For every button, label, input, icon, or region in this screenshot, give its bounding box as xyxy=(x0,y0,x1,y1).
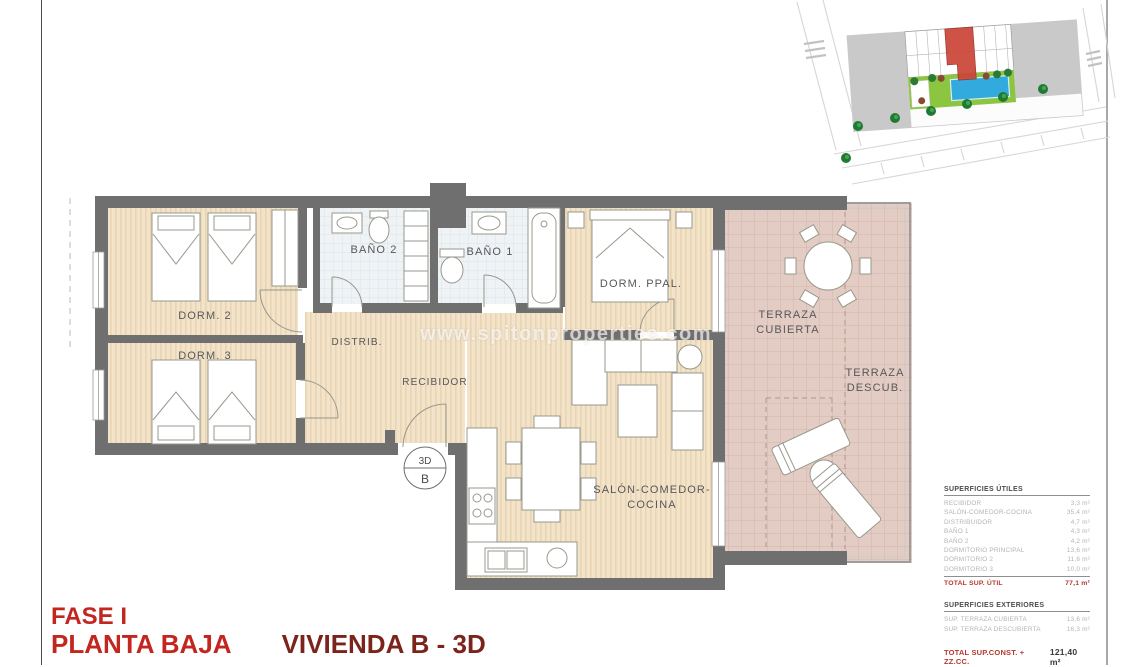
label-distrib: DISTRIB. xyxy=(331,337,382,348)
area-value: 11,6 m² xyxy=(1067,555,1090,564)
label-recibidor: RECIBIDOR xyxy=(402,377,467,388)
label-bano2: BAÑO 2 xyxy=(351,243,398,256)
total-util-label: TOTAL SUP. ÚTIL xyxy=(944,579,1003,589)
unit-marker-top: 3D xyxy=(419,456,432,467)
title-block: FASE I PLANTA BAJA VIVIENDA B - 3D xyxy=(51,604,486,658)
unit-marker-bottom: B xyxy=(421,472,429,486)
areas-panel: SUPERFICIES ÚTILES RECIBIDOR3,3 m² SALÓN… xyxy=(944,486,1090,667)
label-terraza-cubierta-1: TERRAZA xyxy=(758,309,817,321)
label-salon-line1: SALÓN-COMEDOR- xyxy=(593,483,710,496)
area-label: BAÑO 1 xyxy=(944,527,969,536)
area-row: DORMITORIO 310,0 m² xyxy=(944,565,1090,574)
label-terraza-descub-2: DESCUB. xyxy=(847,382,904,394)
area-label: SALÓN-COMEDOR-COCINA xyxy=(944,508,1032,517)
area-value: 13,6 m² xyxy=(1067,546,1090,555)
area-value: 10,0 m² xyxy=(1067,565,1090,574)
site-block-left xyxy=(847,32,912,132)
total-util-row: TOTAL SUP. ÚTIL77,1 m² xyxy=(944,576,1090,589)
label-terraza-cubierta-2: CUBIERTA xyxy=(756,324,819,336)
stove xyxy=(469,488,495,524)
coffee-table xyxy=(618,385,657,437)
fase-title: FASE I xyxy=(51,604,486,629)
area-row: BAÑO 24,2 m² xyxy=(944,537,1090,546)
site-plan xyxy=(797,0,1115,184)
planta-title: PLANTA BAJA xyxy=(51,631,232,658)
label-dorm-ppal: DORM. PPAL. xyxy=(600,278,682,290)
unit-marker: 3D B xyxy=(404,447,446,489)
total-const-row: TOTAL SUP.CONST. + ZZ.CC.121,40 m² xyxy=(944,647,1090,667)
area-label: RECIBIDOR xyxy=(944,499,981,508)
label-dorm2: DORM. 2 xyxy=(178,310,232,322)
total-const-value: 121,40 m² xyxy=(1050,647,1090,667)
area-label: DORMITORIO PRINCIPAL xyxy=(944,546,1024,555)
area-value: 4,2 m² xyxy=(1071,537,1090,546)
area-row: DORMITORIO PRINCIPAL13,6 m² xyxy=(944,546,1090,555)
area-label: DISTRIBUIDOR xyxy=(944,518,992,527)
area-row: SUP. TERRAZA DESCUBIERTA16,3 m² xyxy=(944,625,1090,634)
area-value: 35,4 m² xyxy=(1067,508,1090,517)
area-row: SALÓN-COMEDOR-COCINA35,4 m² xyxy=(944,508,1090,517)
superficies-utiles-title: SUPERFICIES ÚTILES xyxy=(944,486,1090,496)
label-bano1: BAÑO 1 xyxy=(467,245,514,258)
total-util-value: 77,1 m² xyxy=(1065,579,1090,589)
vivienda-title: VIVIENDA B - 3D xyxy=(282,631,486,658)
area-label: DORMITORIO 3 xyxy=(944,565,993,574)
area-value: 16,3 m² xyxy=(1067,625,1090,634)
bathtub xyxy=(528,208,560,308)
area-row: DISTRIBUIDOR4,7 m² xyxy=(944,518,1090,527)
area-value: 13,6 m² xyxy=(1067,615,1090,624)
area-value: 4,3 m² xyxy=(1071,527,1090,536)
superficies-exteriores-title: SUPERFICIES EXTERIORES xyxy=(944,602,1090,612)
total-const-label: TOTAL SUP.CONST. + ZZ.CC. xyxy=(944,648,1050,666)
area-label: BAÑO 2 xyxy=(944,537,969,546)
area-label: SUP. TERRAZA DESCUBIERTA xyxy=(944,625,1041,634)
area-value: 3,3 m² xyxy=(1071,499,1090,508)
site-parcel xyxy=(847,20,1083,132)
label-dorm3: DORM. 3 xyxy=(178,350,232,362)
area-row: DORMITORIO 211,6 m² xyxy=(944,555,1090,564)
sink xyxy=(485,548,527,572)
area-row: SUP. TERRAZA CUBIERTA13,6 m² xyxy=(944,615,1090,624)
label-salon-line2: COCINA xyxy=(627,499,676,511)
apartment-plan: DORM. 2 DORM. 3 BAÑO 2 BAÑO 1 DORM. PPAL… xyxy=(70,183,912,590)
area-row: BAÑO 14,3 m² xyxy=(944,527,1090,536)
label-terraza-descub-1: TERRAZA xyxy=(845,367,904,379)
area-value: 4,7 m² xyxy=(1071,518,1090,527)
area-label: SUP. TERRAZA CUBIERTA xyxy=(944,615,1027,624)
area-label: DORMITORIO 2 xyxy=(944,555,993,564)
area-row: RECIBIDOR3,3 m² xyxy=(944,499,1090,508)
shaft-block xyxy=(430,183,466,228)
